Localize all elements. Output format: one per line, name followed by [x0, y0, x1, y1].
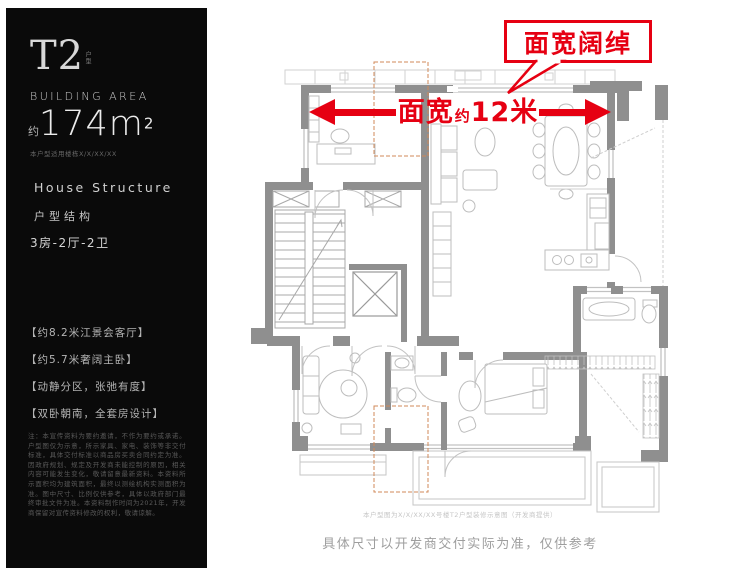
- study-furniture: [309, 96, 375, 164]
- footer-disclaimer: 具体尺寸以开发商交付实际为准，仅供参考: [240, 533, 680, 552]
- building-area-label: BUILDING AREA: [30, 90, 149, 103]
- sidebar-disclaimer: 注：本宣传资料为要约邀请，不作为要约或承诺。户型图仅为示意，所示家具、家电、装饰…: [28, 432, 186, 518]
- width-dimension-label: 面宽 约 12米: [393, 90, 543, 129]
- wardrobe-hatch: [545, 356, 659, 438]
- bedroom2-furniture: [302, 353, 367, 434]
- feature-item: 【动静分区，张弛有度】: [26, 374, 164, 401]
- unit-type-letter: T2: [30, 33, 84, 79]
- callout-label: 面宽阔绰: [524, 24, 632, 60]
- feature-item: 【约8.2米江景会客厅】: [26, 320, 164, 347]
- feature-list: 【约8.2米江景会客厅】 【约5.7米奢阔主卧】 【动静分区，张弛有度】 【双卧…: [26, 320, 164, 428]
- balconies: [300, 451, 659, 512]
- callout-box: 面宽阔绰: [504, 20, 652, 63]
- elevator: [353, 272, 397, 316]
- info-sidebar: T2户型 BUILDING AREA 约174m2 本户型适用楼栋X/X/XX/…: [6, 8, 207, 568]
- unit-type-sub-label: 户型: [84, 51, 91, 65]
- bay-window-band: [285, 70, 615, 84]
- feature-item: 【约5.7米奢阔主卧】: [26, 347, 164, 374]
- area-note: 本户型适用楼栋X/X/XX/XX: [30, 148, 117, 158]
- layout-spec: 3房-2厅-2卫: [30, 234, 110, 251]
- area-approx-prefix: 约: [28, 125, 39, 138]
- building-area-value: 约174m2: [28, 104, 153, 144]
- house-structure-en: House Structure: [34, 180, 173, 195]
- plan-source-note: 本户型图为X/X/XX/XX号楼T2户型装修示意图（开发商提供）: [300, 509, 620, 519]
- house-structure-cn: 户型结构: [34, 208, 94, 224]
- master-bath-fixtures: [583, 298, 657, 323]
- dining-set: [533, 104, 600, 199]
- unit-type: T2户型: [30, 34, 91, 78]
- master-bed: [457, 364, 547, 433]
- living-furniture: [431, 124, 497, 296]
- feature-item: 【双卧朝南，全套房设计】: [26, 401, 164, 428]
- bath2-fixtures: [391, 356, 416, 402]
- poster: T2户型 BUILDING AREA 约174m2 本户型适用楼栋X/X/XX/…: [0, 0, 740, 576]
- kitchen-counter: [545, 189, 609, 270]
